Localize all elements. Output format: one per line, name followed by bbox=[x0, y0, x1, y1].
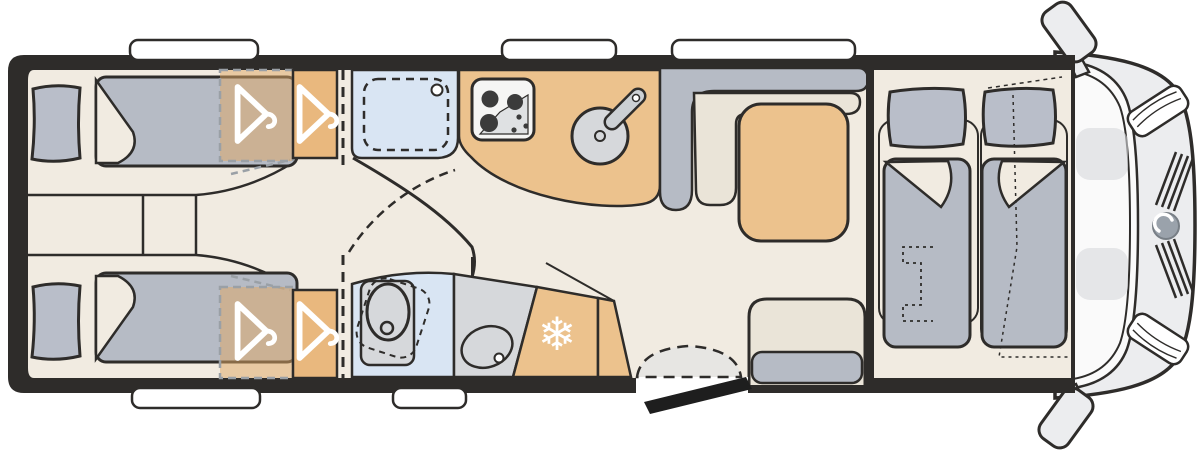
hob-knob bbox=[516, 114, 521, 119]
window-rear-bed-top bbox=[130, 40, 258, 60]
window-dinette-top bbox=[672, 40, 855, 60]
basin-tap bbox=[495, 354, 504, 363]
toilet-flush bbox=[381, 322, 393, 334]
hob-burner bbox=[482, 91, 499, 108]
floorplan-stage: ❄ bbox=[0, 0, 1200, 451]
cab-seat-passenger bbox=[1076, 248, 1128, 300]
wardrobe-under-bed-bottom bbox=[220, 287, 293, 378]
hob-knob bbox=[511, 127, 516, 132]
window-kitchen-top bbox=[502, 40, 616, 60]
shower-drain bbox=[432, 85, 443, 96]
window-rear-bed-bottom bbox=[132, 388, 260, 408]
window-washroom-bottom bbox=[393, 388, 466, 408]
windshield-glass bbox=[1073, 62, 1138, 388]
pillow-bed-bottom bbox=[32, 284, 80, 360]
front-pillow-right bbox=[983, 88, 1055, 146]
cab-seat-driver bbox=[1076, 128, 1128, 180]
hob-burner bbox=[507, 94, 523, 110]
side-bench-cushion bbox=[752, 352, 862, 383]
brand-logo-icon bbox=[1153, 213, 1179, 239]
hob-knob bbox=[523, 123, 528, 128]
wardrobe-under-bed-top bbox=[220, 70, 293, 161]
snowflake-icon: ❄ bbox=[538, 307, 577, 361]
sink-drain bbox=[595, 131, 605, 141]
hob-burner bbox=[480, 114, 498, 132]
pillow-bed-top bbox=[32, 86, 80, 162]
dinette-table bbox=[739, 104, 848, 241]
hob bbox=[472, 79, 534, 140]
front-pillow-left bbox=[888, 88, 965, 147]
dashboard-edge bbox=[1071, 70, 1075, 378]
floorplan-svg: ❄ bbox=[0, 0, 1200, 451]
faucet-tip bbox=[633, 95, 640, 102]
front-divider-wall bbox=[866, 70, 874, 378]
shower-room bbox=[352, 70, 458, 158]
